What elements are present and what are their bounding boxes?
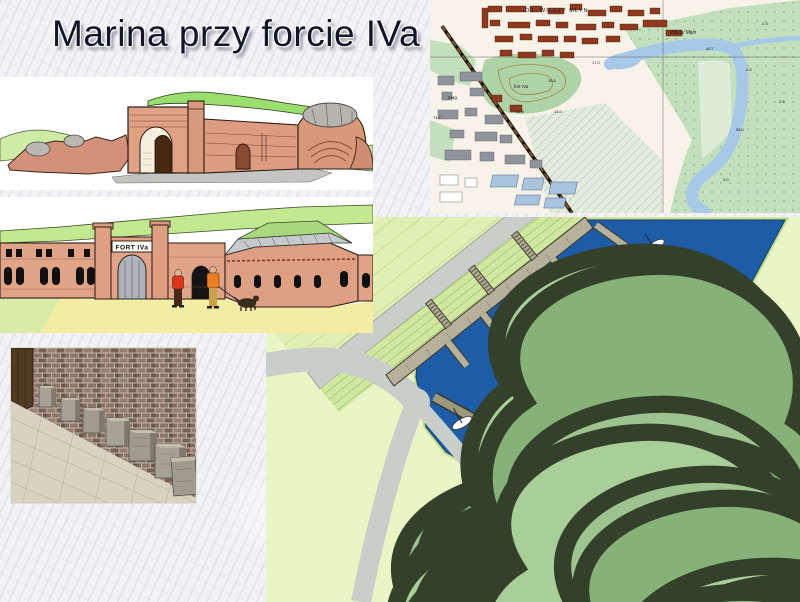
fort-ruins-svg (0, 77, 373, 190)
gate-door (155, 135, 171, 173)
elevation-label: 2.5 (762, 21, 768, 26)
fort-restored-svg: FORT IVa (0, 197, 373, 333)
gate-pillar (95, 227, 111, 299)
map-svg: OS. WILCZY MŁYN Wilczy Młyn fort IVa mag… (430, 0, 800, 213)
fort-label: fort IVa (514, 84, 529, 89)
elevation-label: 40.7 (706, 46, 715, 51)
stones-photo-svg (11, 348, 196, 503)
caponier (225, 243, 358, 307)
mag-label: mag. (448, 95, 458, 100)
slide-title: Marina przy forcie IVa (52, 13, 452, 55)
elevation-label: 2.8 (746, 67, 752, 72)
fort-sign-label: FORT IVa (116, 245, 149, 252)
wall-niche (236, 144, 250, 169)
gate-pillar (188, 101, 204, 173)
road-junction (402, 388, 430, 416)
elevation-label: 3.0 (723, 177, 729, 182)
topographic-map-image: OS. WILCZY MŁYN Wilczy Młyn fort IVa mag… (430, 0, 800, 213)
right-wall (204, 119, 298, 173)
elevation-label: 15.5 (548, 78, 557, 83)
fort-restored-image: FORT IVa (0, 197, 373, 333)
estate-label: OS. WILCZY MŁYN (525, 8, 589, 14)
scattered-trees (469, 252, 800, 602)
stone-block (26, 142, 50, 156)
far-right-window (362, 273, 370, 288)
gate-pillar (152, 225, 168, 299)
elevation-label: 58.0 (736, 127, 745, 132)
slide: Marina przy forcie IVa (0, 0, 800, 602)
mill-label: Wilczy Młyn (670, 30, 697, 36)
elevation-label: 17.0 (592, 60, 601, 65)
elevation-label: 74.7 (433, 115, 442, 120)
bastion-stone-cap (303, 103, 357, 127)
stone-blocks-photo (10, 347, 197, 504)
elevation-label: 16.0 (516, 109, 525, 114)
elevation-label: 3.5 (779, 99, 785, 104)
stone-block (64, 135, 84, 147)
elevation-label: 14.0 (554, 109, 563, 114)
fort-ruins-image (0, 77, 373, 190)
